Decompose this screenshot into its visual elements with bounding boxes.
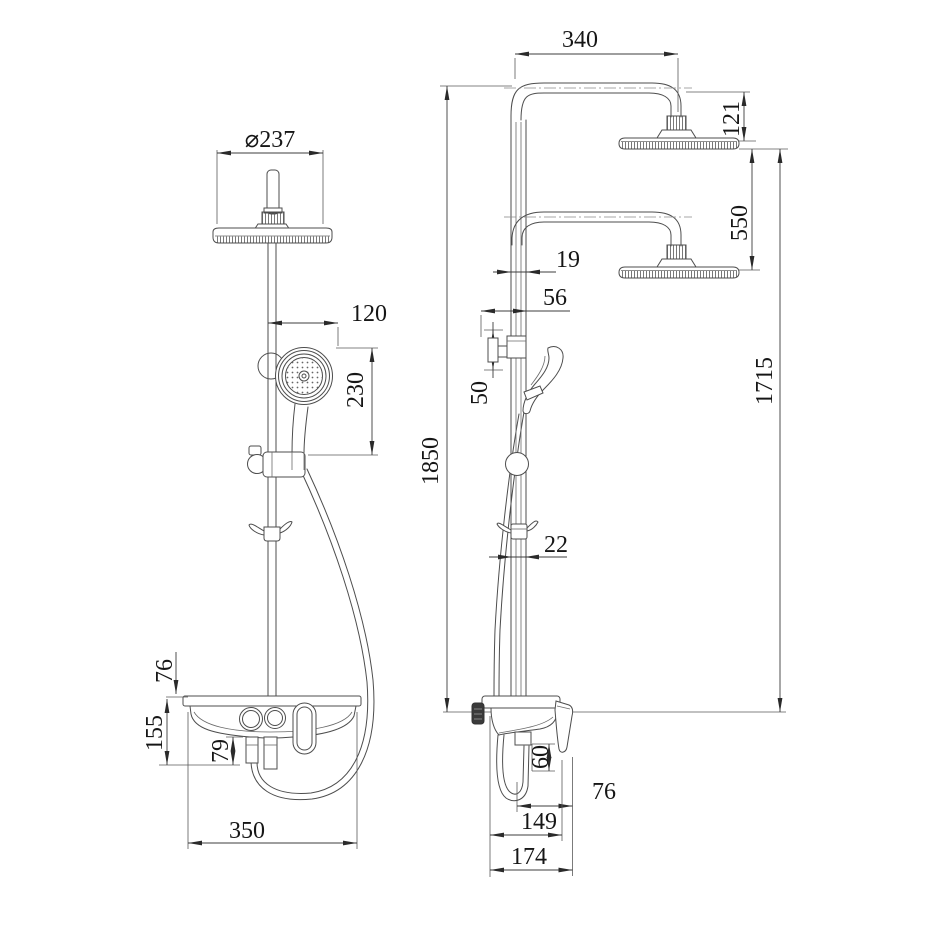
dim-handshower-offset: 120 xyxy=(268,301,387,346)
dim-pipe-width-upper: 19 xyxy=(493,247,580,273)
dim-total-depth: 174 xyxy=(490,844,573,870)
dim-label-body-depth: 76 xyxy=(592,779,616,805)
front-overhead-shower xyxy=(213,170,332,243)
dim-label-diverter-offset: 56 xyxy=(543,285,567,311)
dim-label-mixer-depth: 149 xyxy=(521,809,557,835)
dim-label-handshower-height: 230 xyxy=(343,372,369,408)
drawing-canvas: ⌀237 xyxy=(0,0,937,937)
dim-hose-connector-drop: 60 xyxy=(528,744,555,771)
side-hose-loop xyxy=(497,732,531,801)
dim-label-column-height: 1850 xyxy=(418,437,444,485)
front-spout xyxy=(293,703,316,754)
side-hand-shower xyxy=(523,347,563,414)
front-hose-hook xyxy=(249,521,292,541)
dim-column-height: 1850 xyxy=(418,86,512,712)
dim-label-head-drop: 121 xyxy=(719,101,745,137)
dim-label-diverter-height: 50 xyxy=(467,381,493,405)
dim-diverter-height: 50 xyxy=(467,322,503,405)
dim-label-arm-reach: 340 xyxy=(562,27,598,53)
dim-label-hose-connector-drop: 60 xyxy=(528,745,554,769)
dim-label-spout-drop: 79 xyxy=(208,739,234,763)
side-arm-lower xyxy=(504,212,739,278)
side-view: 1850 xyxy=(418,27,788,877)
dim-label-head-to-mixer: 1715 xyxy=(752,357,778,405)
dim-shelf-top-clearance: 76 xyxy=(152,652,188,697)
front-view: ⌀237 xyxy=(142,127,387,849)
dim-head-to-mixer: 1715 xyxy=(752,149,780,712)
dim-label-head-diameter: ⌀237 xyxy=(245,127,295,153)
side-hose-hook xyxy=(497,521,538,539)
side-slider-knob xyxy=(506,453,529,476)
dim-label-pipe-width-lower: 22 xyxy=(544,532,568,558)
dim-label-pipe-width-upper: 19 xyxy=(556,247,580,273)
dim-head-travel: 550 xyxy=(727,149,788,270)
dim-label-shelf-width: 350 xyxy=(229,818,265,844)
shower-dimension-drawing: ⌀237 xyxy=(0,0,937,937)
side-diverter-valve xyxy=(488,336,526,362)
dim-spout-drop: 79 xyxy=(208,737,243,765)
dim-arm-reach: 340 xyxy=(515,27,678,112)
dim-label-shelf-top-clearance: 76 xyxy=(152,659,178,683)
dim-label-total-depth: 174 xyxy=(511,844,547,870)
side-arm-upper xyxy=(504,83,739,149)
front-hand-shower xyxy=(276,348,333,455)
dim-head-drop: 121 xyxy=(686,92,756,141)
dim-label-head-travel: 550 xyxy=(727,205,753,241)
dim-label-handshower-offset: 120 xyxy=(351,301,387,327)
dim-label-shelf-height: 155 xyxy=(142,715,168,751)
